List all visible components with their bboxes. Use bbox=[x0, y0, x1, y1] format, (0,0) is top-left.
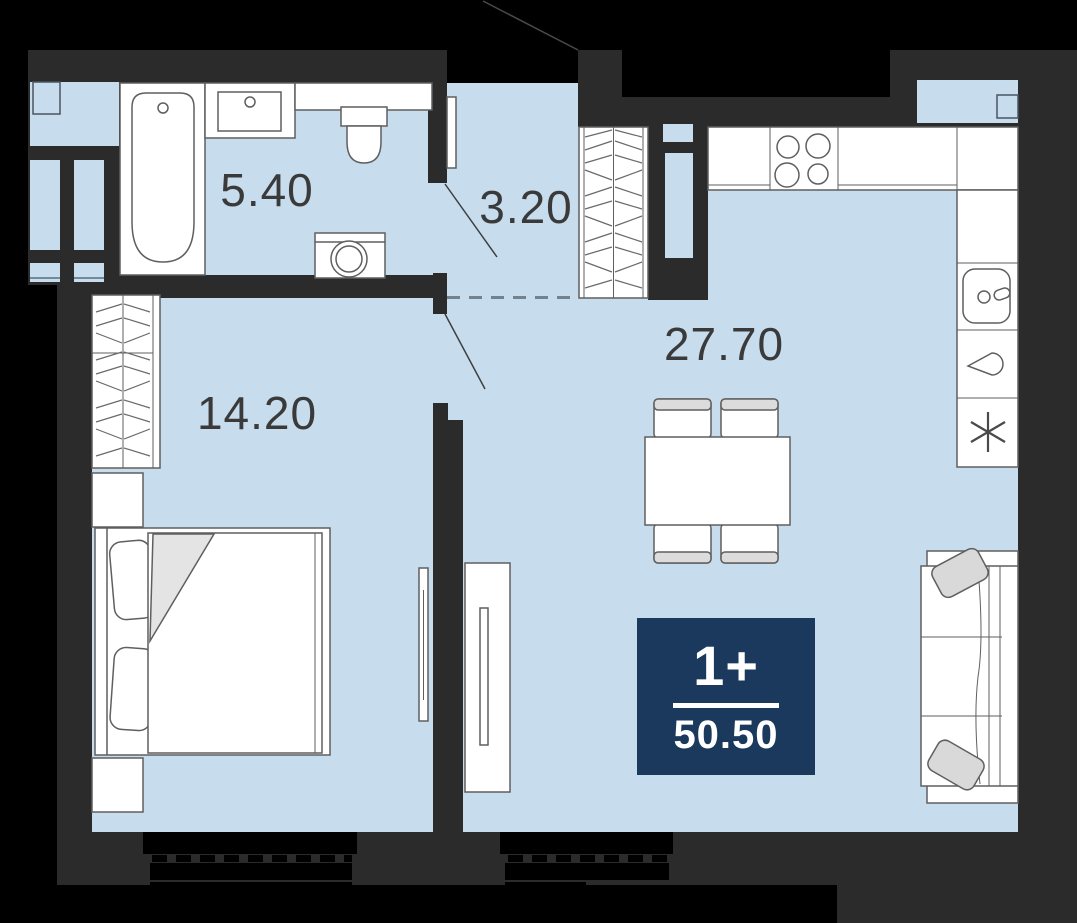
room-area-label-living-kitchen: 27.70 bbox=[664, 317, 784, 371]
bed-icon bbox=[95, 528, 330, 755]
bathroom-door-leaf bbox=[447, 97, 456, 168]
badge-divider bbox=[673, 703, 779, 708]
chair-icon bbox=[721, 399, 778, 438]
bathroom-counter bbox=[295, 83, 432, 110]
apartment-badge: 1+ 50.50 bbox=[637, 618, 815, 775]
living-window-icon bbox=[500, 832, 673, 922]
tv-console-icon bbox=[465, 563, 510, 792]
bathroom-sink-icon bbox=[205, 83, 295, 138]
sofa-icon bbox=[921, 546, 1018, 803]
chair-icon bbox=[721, 524, 778, 563]
cabinet bbox=[92, 473, 143, 527]
tv-icon bbox=[419, 568, 428, 721]
room-area-label-bedroom: 14.20 bbox=[197, 386, 317, 440]
kitchen-sink-icon bbox=[963, 269, 1011, 323]
bedroom-window-icon bbox=[143, 832, 357, 922]
chair-icon bbox=[654, 399, 711, 438]
badge-total-area: 50.50 bbox=[673, 715, 778, 755]
kitchen-counter-icon bbox=[708, 127, 1018, 190]
vent-shaft-icon bbox=[997, 95, 1018, 118]
bathtub-icon bbox=[120, 83, 205, 275]
hall-wardrobe-icon bbox=[579, 127, 648, 298]
chair-icon bbox=[654, 524, 711, 563]
room-area-label-bathroom: 5.40 bbox=[220, 163, 314, 217]
badge-rooms-count: 1+ bbox=[693, 638, 759, 694]
dining-table-icon bbox=[645, 437, 790, 525]
window-icon bbox=[74, 160, 104, 250]
room-area-label-hallway: 3.20 bbox=[479, 180, 573, 234]
kitchen-duct-niche-top bbox=[663, 124, 693, 142]
nightstand bbox=[92, 758, 143, 812]
kitchen-duct-niche bbox=[665, 153, 693, 258]
entrance-door-swing bbox=[483, 1, 578, 50]
window-icon bbox=[30, 160, 60, 250]
bedroom-doorway-floor bbox=[433, 313, 447, 404]
bedroom-wardrobe-icon bbox=[92, 295, 160, 468]
floor-plan-drawing bbox=[0, 0, 1077, 923]
washing-machine-icon bbox=[315, 233, 385, 278]
floor-plan: 5.40 3.20 14.20 27.70 1+ 50.50 bbox=[0, 0, 1077, 923]
